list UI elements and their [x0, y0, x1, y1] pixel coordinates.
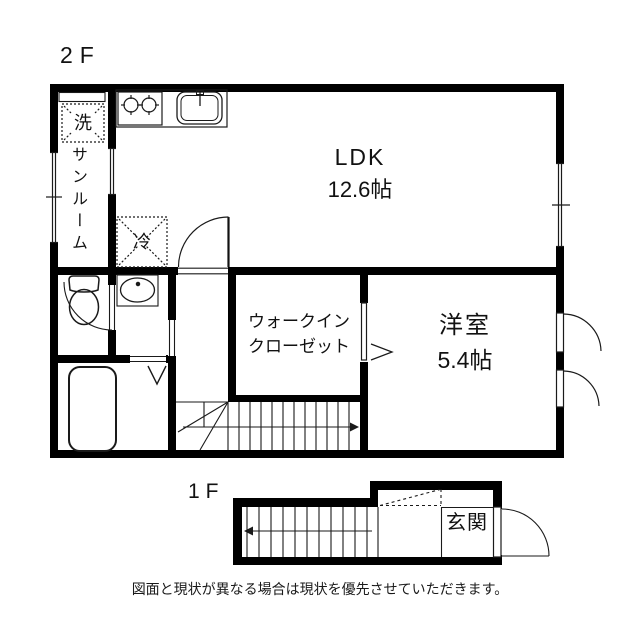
- stairs-1f-icon: [244, 507, 378, 557]
- door-washroom-icon: [168, 320, 176, 356]
- window-sunroom-inner-icon: [108, 148, 116, 195]
- floor-label-1f: 1F: [188, 481, 225, 502]
- entrance-door-icon: [494, 507, 550, 557]
- door-wic-icon: [360, 303, 392, 362]
- walls-2f: [50, 84, 564, 458]
- window-ldk-right-icon: [552, 163, 570, 247]
- door-bathroom-icon: [130, 355, 166, 384]
- kitchen-sink-icon: [177, 91, 222, 125]
- stove-icon: [118, 92, 162, 125]
- room-label-ldk: LDK: [280, 146, 440, 169]
- room-label-entrance: 玄関: [438, 513, 496, 533]
- window-casement-upper-icon: [557, 313, 602, 352]
- room-label-western-room: 洋室: [395, 314, 535, 338]
- stairs-2f-icon: [176, 402, 359, 450]
- room-label-walk-in-closet-line1: ウォークイン: [236, 313, 362, 330]
- sunroom-shelf-icon: [59, 93, 105, 102]
- bathtub-icon: [69, 367, 116, 451]
- room-label-sunroom: サンルーム: [69, 146, 85, 276]
- room-size-ldk: 12.6帖: [280, 179, 440, 201]
- room-size-western-room: 5.4帖: [395, 349, 535, 372]
- floorplan-page: 2F 1F LDK 12.6帖 洋室 5.4帖 ウォークイン クローゼット サン…: [0, 0, 640, 640]
- toilet-icon: [69, 276, 99, 325]
- room-label-walk-in-closet-line2: クローゼット: [236, 338, 362, 355]
- floor-label-2f: 2F: [60, 44, 101, 67]
- window-sunroom-left-icon: [46, 152, 62, 243]
- door-ldk-icon: [178, 217, 229, 275]
- disclaimer-caption: 図面と現状が異なる場合は現状を優先させていただきます。: [0, 582, 640, 596]
- window-casement-lower-icon: [557, 370, 600, 407]
- refrigerator-label: 冷: [117, 217, 167, 267]
- washbasin-icon: [117, 275, 158, 306]
- washer-label: 洗: [62, 104, 104, 142]
